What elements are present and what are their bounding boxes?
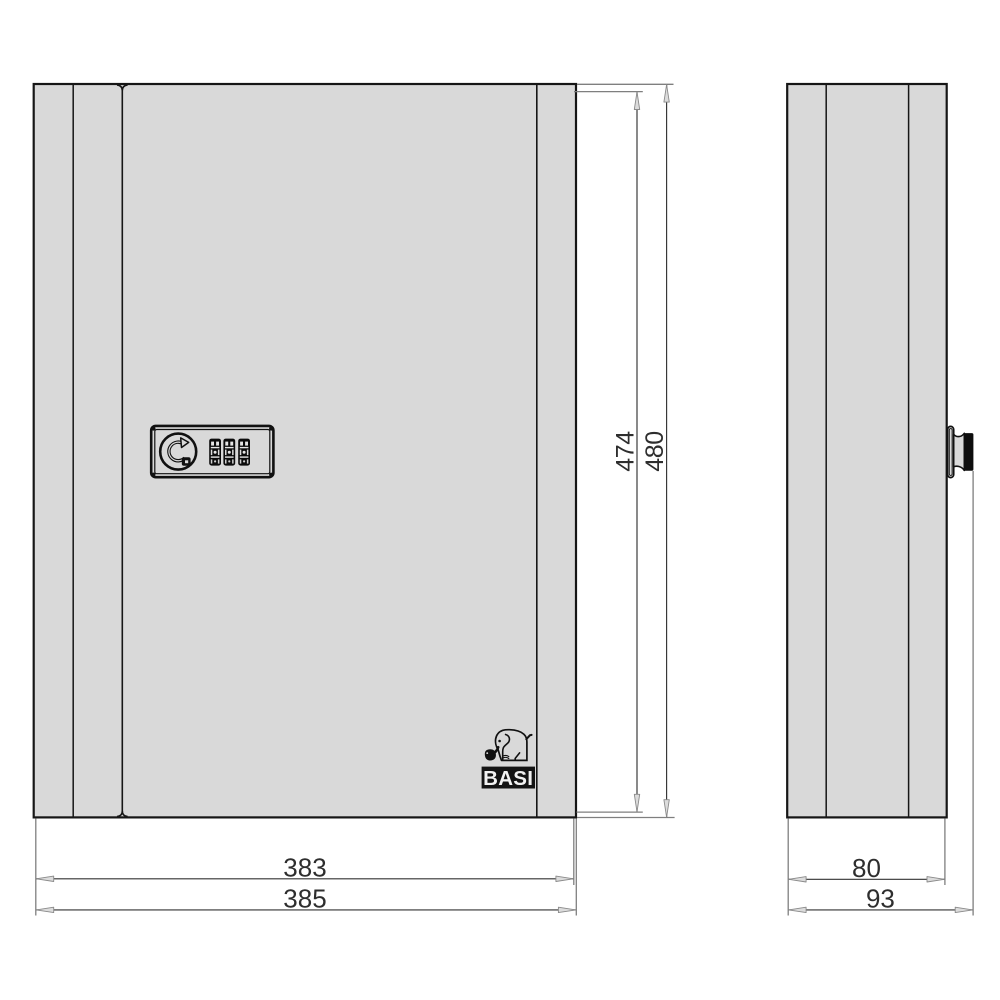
svg-text:383: 383 — [283, 852, 326, 882]
svg-text:385: 385 — [283, 884, 326, 914]
svg-text:474: 474 — [612, 431, 640, 472]
svg-text:80: 80 — [852, 853, 881, 883]
svg-text:BASI: BASI — [483, 767, 533, 790]
svg-text:480: 480 — [641, 431, 669, 472]
svg-text:93: 93 — [866, 884, 895, 914]
